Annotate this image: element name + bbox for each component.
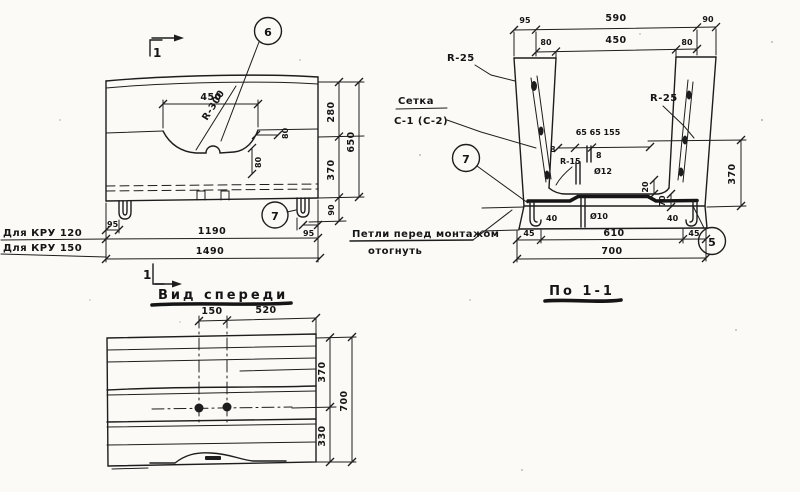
mesh-label-line1: Сетка	[398, 96, 434, 107]
recess-profile	[163, 130, 258, 153]
dim-right-370: 370	[326, 159, 337, 180]
front-right-dims: 370 330 700	[292, 333, 356, 466]
elevation-bottom-dims: 95 95 1190 1490	[102, 200, 324, 263]
dim-top-90: 90	[702, 15, 714, 24]
section-title: По 1-1	[549, 284, 615, 299]
dim-top-450: 450	[605, 35, 626, 46]
dim-bottom-700: 700	[601, 246, 622, 257]
loop-right	[686, 201, 697, 226]
dim-length-1190: 1190	[198, 226, 226, 237]
dim-330: 330	[317, 425, 328, 446]
dim-right-370: 370	[727, 163, 738, 184]
dim-inner-chain: 65 65 155	[576, 128, 621, 137]
lug-left	[119, 201, 131, 219]
dim-520: 520	[255, 305, 276, 316]
front-view-outline	[107, 334, 316, 469]
hole-centerlines	[152, 316, 292, 426]
label-r15: R-15	[560, 157, 581, 166]
mesh-label-line2: С-1 (С-2)	[394, 116, 448, 127]
dim-notch-80a: 80	[281, 127, 290, 139]
section-mark-label: 1	[143, 268, 151, 282]
callout-7-section: 7	[453, 145, 529, 204]
callout-6-label: 6	[264, 26, 272, 39]
dim-bottom-610: 610	[603, 228, 624, 239]
dim-bottom-45r: 45	[688, 229, 700, 238]
bottom-plate	[528, 197, 697, 202]
note-line1: Петли перед монтажом	[352, 229, 499, 240]
callout-5-label: 5	[708, 236, 716, 249]
dim-right-650: 650	[346, 131, 357, 152]
dim-right-280: 280	[326, 101, 337, 122]
callout-6: 6	[221, 18, 282, 142]
dim-inner-8r: 8	[596, 151, 602, 160]
elevation-right-dims: 280 370 90 650	[309, 78, 364, 225]
mesh-label: Сетка С-1 (С-2)	[394, 96, 536, 148]
dim-700: 700	[339, 390, 350, 411]
front-view: 1 Вид спереди	[107, 264, 356, 469]
note-kru-150: Для КРУ 150	[3, 243, 82, 254]
hidden-lines	[106, 184, 318, 200]
variant-notes: Для КРУ 120 Для КРУ 150	[1, 228, 106, 257]
label-r25-left: R-25	[447, 53, 475, 64]
radius-labels: R-25 R-25	[447, 53, 694, 138]
label-d12: Ø12	[594, 166, 612, 176]
dim-370: 370	[317, 361, 328, 382]
callout-7-elevation: 7	[262, 202, 296, 228]
dim-lug-left-95: 95	[107, 220, 119, 229]
section-cut-mark-bottom: 1	[143, 264, 182, 288]
hole-right	[223, 403, 232, 412]
dim-top-590: 590	[605, 13, 626, 24]
front-view-title: Вид спереди	[158, 288, 288, 303]
note-kru-120: Для КРУ 120	[3, 228, 82, 239]
section-bottom-dims: 45 610 45 700	[513, 228, 710, 263]
dim-top-95: 95	[519, 16, 531, 25]
erection-note: Петли перед монтажом отогнуть	[350, 207, 524, 257]
loop-left	[530, 201, 541, 226]
callout-7-label: 7	[462, 153, 470, 166]
inner-top-dims: 65 65 155 8 8	[550, 128, 654, 160]
dim-70: 70	[658, 195, 667, 207]
hole-left	[195, 404, 204, 413]
technical-drawing: 1 R-300 450 80 8	[0, 0, 800, 492]
lug-right	[297, 198, 309, 217]
label-d10: Ø10	[590, 211, 608, 221]
front-top-dims: 150 520	[195, 305, 320, 334]
note-line2: отогнуть	[368, 246, 422, 257]
dim-20: 20	[641, 181, 650, 193]
dim-notch-80b: 80	[254, 156, 263, 168]
dim-inner-8l: 8	[550, 145, 556, 154]
section-top-dims: 95 590 90 80 450 80	[510, 13, 720, 60]
dim-top-80l: 80	[540, 38, 552, 47]
dim-recess-width: 450	[200, 92, 221, 103]
dim-length-1490: 1490	[196, 246, 224, 257]
dim-right-90: 90	[327, 204, 336, 216]
dim-notch-group: 80 80	[248, 127, 290, 178]
dim-lug-right-95: 95	[303, 229, 315, 238]
dim-top-80r: 80	[681, 38, 693, 47]
callout-7-label: 7	[271, 210, 279, 223]
inner-labels: R-15 Ø12	[556, 146, 612, 185]
dim-150: 150	[201, 306, 222, 317]
elevation-view: 1 R-300 450 80 8	[1, 18, 364, 264]
blueprint-page: 1 R-300 450 80 8	[0, 0, 800, 492]
dim-40-right: 40	[667, 214, 679, 223]
dim-bottom-45l: 45	[523, 229, 535, 238]
label-r25-right: R-25	[650, 93, 678, 104]
dim-40-left: 40	[546, 214, 558, 223]
section-title-underline	[545, 300, 621, 301]
section-cut-mark-top: 1	[150, 35, 184, 61]
rebar-d10: Ø10	[581, 198, 608, 227]
cross-section-view: 95 590 90 80 450 80	[350, 13, 746, 301]
section-mark-label: 1	[153, 46, 161, 60]
